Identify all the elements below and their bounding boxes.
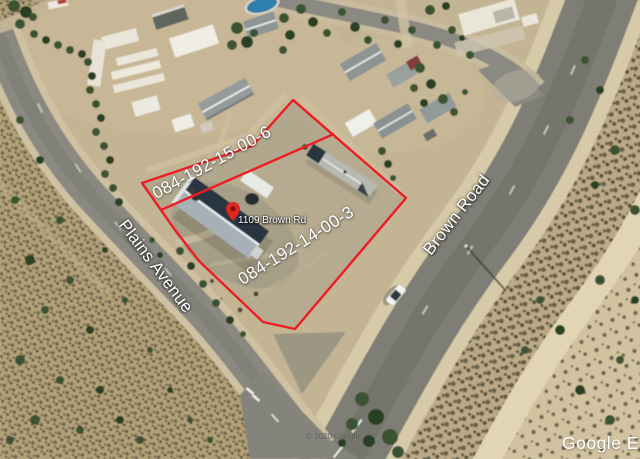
location-pin-icon[interactable] <box>226 202 240 221</box>
satellite-imagery <box>0 0 640 459</box>
map-canvas[interactable]: 084-192-15-00-6 084-192-14-00-3 Plains A… <box>0 0 640 459</box>
